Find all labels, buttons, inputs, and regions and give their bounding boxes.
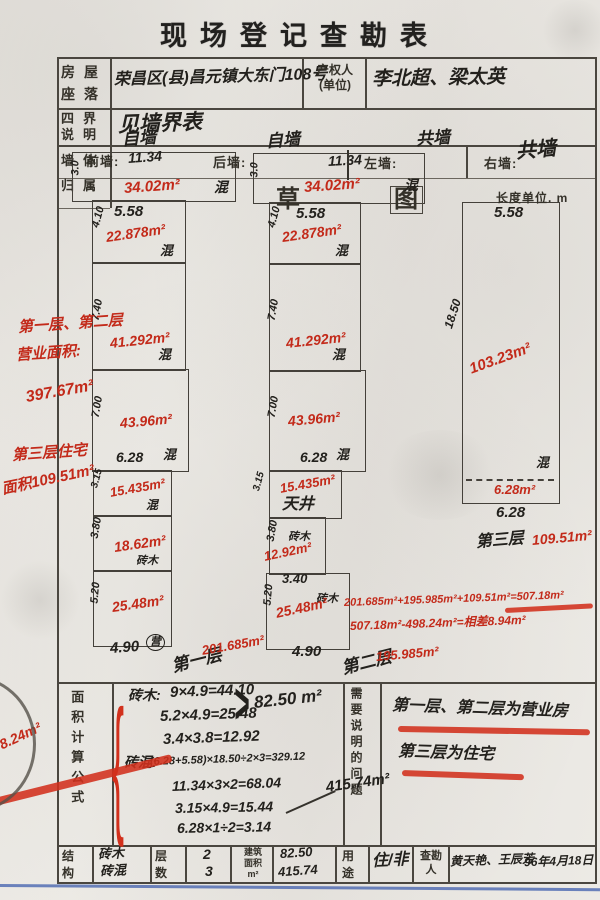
sketch-label: 4.90 [292,644,321,659]
sketch-label: (6.28+5.58)×18.50÷2×3=329.12 [150,752,306,768]
sketch-label: 面积109.51m² [0,463,95,497]
sketch-label: 右墙: [484,157,517,170]
plan-box [269,263,361,372]
sketch-label: 第一层、第二层为营业房 [392,698,568,720]
sketch-label: 195.985m² [375,645,439,663]
sketch-label: 5.58 [114,204,143,219]
sketch-label: 3.0 [71,160,82,175]
hand-stroke [505,603,593,613]
sketch-label: 混 [335,244,348,257]
sketch-label: 左墙: [364,157,397,170]
sketch-area: 自墙前墙:11.34后墙:自墙共墙11.34左墙:右墙:共墙草图长度单位. m3… [0,0,600,900]
sketch-label: 混 [336,448,349,461]
sketch-label: 混 [332,348,345,361]
sketch-label: 11.34 [128,149,163,165]
sketch-label: 5.20 [90,582,103,604]
sketch-label: 混 [404,178,418,192]
sketch-label: 混 [160,244,173,257]
sketch-label: 3.40 [282,572,307,585]
sketch-label: 混 [536,456,549,469]
sketch-label: 3.0 [250,162,261,177]
sketch-label: 前墙: [86,155,119,168]
sketch-label: 砖木 [136,556,158,567]
sketch-label: 营业面积: [15,343,81,362]
sketch-label: 4.90 [109,639,139,656]
sketch-label: 后墙: [213,156,246,169]
sketch-label: 5.20 [263,584,276,606]
sketch-label: 自墙 [265,131,300,150]
sketch-label: 11.34 [328,152,363,168]
sketch-label: 507.18m²-498.24m²=相差8.94m² [350,614,526,632]
sketch-label: 砖木: [128,688,161,702]
sketch-label: > [234,674,249,731]
sketch-label: 34.02m² [123,177,180,196]
hand-stroke [0,884,600,891]
hand-stroke [398,726,590,735]
sketch-label: 营 [146,634,165,651]
scan-page: 现场登记查勘表 房屋座落 荣昌区(县)昌元镇大东门108号 产权人 (单位) 李… [0,0,600,900]
sketch-label: 混 [158,348,171,361]
sketch-label: 3.15×4.9=15.44 [175,799,273,815]
sketch-label: 自墙 [121,129,156,148]
sketch-label: 397.67m² [25,378,95,406]
sketch-label: 第三层为住宅 [398,744,495,763]
sketch-label: 混 [146,499,158,511]
sketch-label: 第三层 [475,531,524,551]
hand-stroke [402,770,524,780]
hand-stroke [347,150,349,180]
sketch-label: 5.58 [494,205,523,220]
sketch-label: 6.28 [496,505,525,520]
sketch-label: 共墙 [415,129,450,148]
sketch-label: 第三层住宅 [11,443,87,463]
hand-stroke [286,790,336,814]
sketch-label: 天井 [282,497,314,513]
sketch-label: 长度单位. m [496,192,568,204]
sketch-label: 6.28 [300,450,327,464]
sketch-label: 6.28×1÷2=3.14 [177,819,271,835]
sketch-label: 6.28 [116,450,143,464]
sketch-label: 18.50 [442,298,463,330]
sketch-label: 5.58 [296,206,325,221]
sketch-label: 3.15 [252,471,267,492]
hand-stroke [466,479,554,483]
sketch-label: 11.34×3×2=68.04 [172,775,282,793]
sketch-label: 混 [163,448,176,461]
sketch-label: 201.685m² [201,633,265,657]
sketch-label: 6.28m² [494,483,535,496]
sketch-label: 34.02m² [303,176,360,195]
sketch-label: 109.51m² [531,528,592,547]
sketch-label: 82.50 m² [253,687,322,711]
sketch-label: 共墙 [515,139,557,162]
sketch-label: 混 [214,180,228,194]
